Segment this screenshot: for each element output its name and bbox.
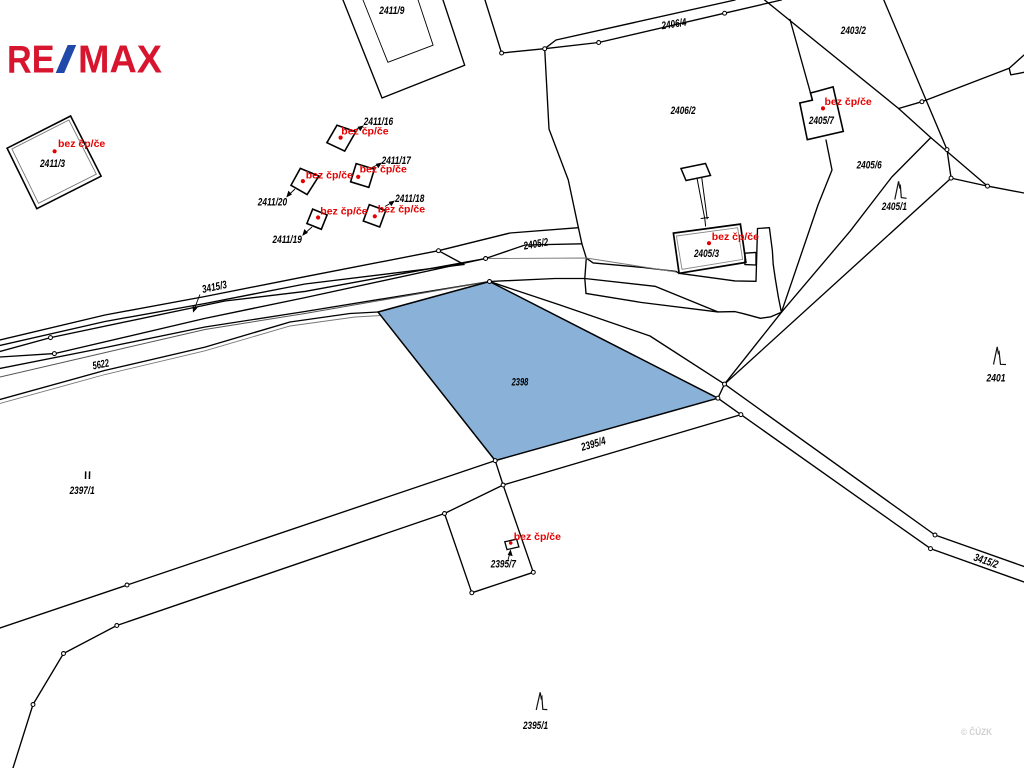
svg-text:2411/20: 2411/20 bbox=[257, 197, 288, 209]
svg-text:2405/7: 2405/7 bbox=[808, 115, 834, 127]
svg-text:2411/19: 2411/19 bbox=[272, 234, 303, 246]
svg-text:bez čp/če: bez čp/če bbox=[306, 170, 353, 182]
svg-text:2401: 2401 bbox=[986, 373, 1006, 385]
svg-text:2398: 2398 bbox=[511, 377, 529, 389]
svg-text:2403/2: 2403/2 bbox=[840, 25, 866, 37]
svg-text:2395/7: 2395/7 bbox=[490, 559, 516, 571]
svg-text:2411/3: 2411/3 bbox=[39, 158, 65, 170]
svg-text:2405/3: 2405/3 bbox=[693, 248, 719, 260]
svg-text:2411/9: 2411/9 bbox=[379, 5, 406, 17]
svg-text:2397/1: 2397/1 bbox=[69, 485, 95, 497]
svg-text:2411/18: 2411/18 bbox=[394, 193, 425, 205]
svg-text:bez čp/če: bez čp/če bbox=[320, 206, 367, 218]
svg-text:© ČÚZK: © ČÚZK bbox=[961, 726, 992, 737]
svg-text:2411/16: 2411/16 bbox=[363, 116, 394, 128]
svg-text:MAX: MAX bbox=[78, 39, 162, 82]
svg-text:2405/1: 2405/1 bbox=[881, 201, 907, 213]
svg-text:bez čp/če: bez čp/če bbox=[825, 96, 872, 108]
svg-text:2406/2: 2406/2 bbox=[670, 105, 696, 117]
svg-text:2405/6: 2405/6 bbox=[856, 160, 882, 172]
svg-text:bez čp/če: bez čp/če bbox=[712, 231, 759, 243]
svg-text:bez čp/če: bez čp/če bbox=[58, 138, 105, 150]
svg-text:2411/17: 2411/17 bbox=[381, 155, 412, 167]
svg-text:RE: RE bbox=[7, 39, 55, 82]
svg-text:2395/1: 2395/1 bbox=[522, 720, 548, 732]
svg-text:bez čp/če: bez čp/če bbox=[514, 531, 561, 543]
svg-text:bez čp/če: bez čp/če bbox=[378, 204, 425, 216]
